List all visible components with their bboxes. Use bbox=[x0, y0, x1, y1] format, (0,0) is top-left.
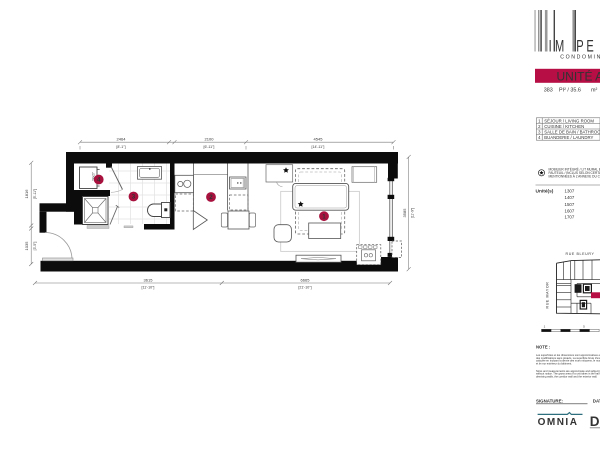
svg-text:1: 1 bbox=[322, 213, 326, 220]
svg-text:NOTE :: NOTE : bbox=[536, 345, 550, 350]
svg-text:SÉJOUR / LIVING ROOM: SÉJOUR / LIVING ROOM bbox=[544, 118, 594, 123]
svg-text:et le mur extérieur du bâtimen: et le mur extérieur du bâtiment. bbox=[536, 361, 572, 365]
svg-text:SALLE DE BAIN / BATHROOM: SALLE DE BAIN / BATHROOM bbox=[544, 130, 600, 135]
svg-text:[6'-11"]: [6'-11"] bbox=[204, 145, 215, 149]
svg-text:1035: 1035 bbox=[24, 241, 29, 251]
svg-text:3615: 3615 bbox=[144, 277, 154, 282]
svg-text:4: 4 bbox=[97, 177, 101, 184]
svg-text:1607: 1607 bbox=[565, 209, 575, 214]
svg-text:CONDOMINI: CONDOMINI bbox=[560, 55, 600, 61]
svg-text:MENTIONNÉES À L'ANNEXE DU CONT: MENTIONNÉES À L'ANNEXE DU CONTRAT bbox=[549, 174, 600, 179]
svg-text:m²: m² bbox=[591, 87, 597, 93]
svg-text:383: 383 bbox=[544, 87, 553, 93]
svg-text:[14'-11"]: [14'-11"] bbox=[312, 145, 325, 149]
svg-text:1507: 1507 bbox=[565, 202, 575, 207]
svg-text:[3'-5"]: [3'-5"] bbox=[33, 242, 37, 251]
svg-text:OMNIA: OMNIA bbox=[538, 417, 579, 428]
svg-text:2: 2 bbox=[209, 194, 213, 201]
svg-text:BUANDERIE / LAUNDRY: BUANDERIE / LAUNDRY bbox=[544, 135, 593, 140]
svg-text:RUE BLEURY: RUE BLEURY bbox=[566, 252, 595, 256]
svg-text:DATE:: DATE: bbox=[593, 399, 600, 404]
svg-text:CUISINE / KITCHEN: CUISINE / KITCHEN bbox=[544, 124, 584, 129]
svg-text:[8'-1"]: [8'-1"] bbox=[116, 145, 125, 149]
svg-text:IM: IM bbox=[549, 37, 568, 56]
svg-text:4545: 4545 bbox=[314, 137, 324, 142]
svg-text:RUE MAYOR: RUE MAYOR bbox=[546, 282, 550, 309]
svg-text:1407: 1407 bbox=[565, 195, 575, 200]
svg-text:2464: 2464 bbox=[117, 137, 127, 142]
svg-text:1307: 1307 bbox=[565, 188, 575, 193]
svg-text:1707: 1707 bbox=[565, 215, 575, 220]
svg-text:2100: 2100 bbox=[205, 137, 215, 142]
svg-text:[11'-10"]: [11'-10"] bbox=[142, 286, 155, 290]
svg-text:3585: 3585 bbox=[402, 208, 407, 218]
svg-text:[5'-11"]: [5'-11"] bbox=[33, 189, 37, 199]
svg-text:PI² / 35.6: PI² / 35.6 bbox=[559, 87, 581, 93]
svg-text:6665: 6665 bbox=[301, 277, 311, 282]
svg-text:PE: PE bbox=[576, 37, 596, 56]
svg-text:Unité(s): Unité(s) bbox=[536, 189, 554, 195]
svg-text:1816: 1816 bbox=[24, 189, 29, 199]
svg-text:[21'-10"]: [21'-10"] bbox=[298, 286, 311, 290]
svg-text:UNITÉ A: UNITÉ A bbox=[557, 68, 600, 83]
svg-text:demising walls, the corridor w: demising walls, the corridor wall and th… bbox=[536, 374, 598, 378]
svg-text:3: 3 bbox=[132, 194, 136, 201]
svg-text:De: De bbox=[590, 414, 600, 429]
svg-text:[11'-9"]: [11'-9"] bbox=[411, 208, 415, 218]
svg-text:SIGNATURE:: SIGNATURE: bbox=[536, 399, 564, 404]
